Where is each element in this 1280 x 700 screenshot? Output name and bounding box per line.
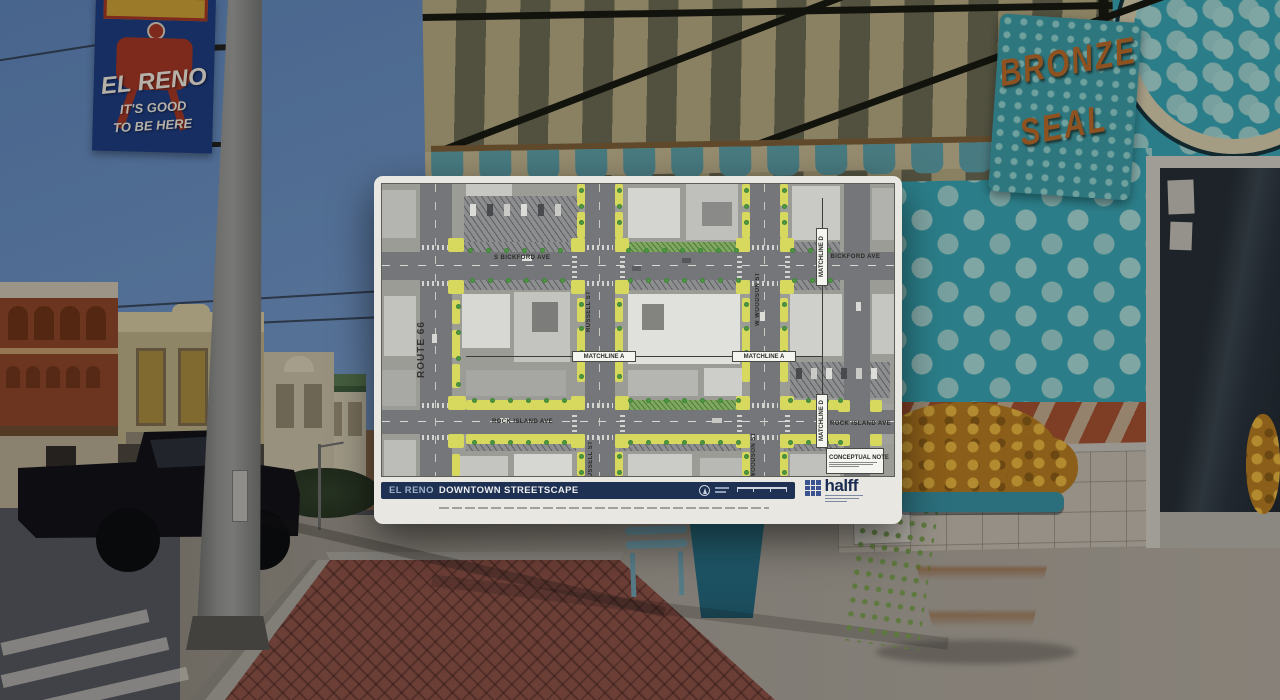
map-streetscape-zone (870, 434, 882, 446)
plan-title-main: DOWNTOWN STREETSCAPE (439, 485, 579, 496)
map-crosswalk (422, 245, 450, 250)
map-tree (456, 330, 461, 335)
map-streetscape-zone (780, 212, 788, 238)
halff-logo-text: halff (825, 478, 863, 493)
map-tree (808, 248, 813, 253)
woodson-st-label: WOODSON ST (751, 436, 757, 477)
map-building (642, 304, 664, 330)
map-tree (718, 398, 723, 403)
map-building (872, 294, 895, 354)
conceptual-note-box: CONCEPTUAL NOTE (826, 448, 884, 474)
matchline-a-box-west: MATCHLINE A (572, 351, 636, 362)
map-tree (456, 304, 461, 309)
map-tree (560, 278, 565, 283)
map-tree (540, 248, 545, 253)
map-tree (628, 398, 633, 403)
s-bickford-ave-label-east: S BICKFORD AVE (824, 254, 880, 260)
map-tree (646, 440, 651, 445)
scale-bar-icon (737, 487, 787, 494)
map-tree (734, 248, 739, 253)
map-tree (542, 278, 547, 283)
map-tree (472, 440, 477, 445)
map-tree (522, 248, 527, 253)
map-car (632, 266, 641, 271)
map-centerline (435, 184, 436, 477)
map-tree (562, 398, 567, 403)
map-tree (628, 278, 633, 283)
map-parked-car (871, 368, 877, 379)
map-crosswalk (587, 245, 613, 250)
map-tree (788, 398, 793, 403)
map-tree (792, 278, 797, 283)
map-tree (790, 248, 795, 253)
matchline-a-box-east: MATCHLINE A (732, 351, 796, 362)
map-tree (579, 302, 584, 307)
map-tree (700, 278, 705, 283)
map-streetscape-zone (615, 212, 623, 238)
map-tree (744, 220, 749, 225)
route-66-label: ROUTE 66 (416, 312, 427, 378)
map-parked-car (826, 368, 832, 379)
map-parked-car (521, 204, 527, 216)
map-tree (617, 188, 622, 193)
map-building (628, 370, 698, 396)
map-streetscape-zone (577, 212, 585, 238)
map-crosswalk (572, 254, 577, 278)
map-tree (544, 398, 549, 403)
note-microtext-line (829, 464, 873, 465)
map-building (702, 202, 732, 226)
map-centerline (764, 184, 765, 477)
aerial-plan-map: ROUTE 66 S BICKFORD AVE S BICKFORD AVE R… (381, 183, 895, 477)
map-streetscape-zone (466, 434, 576, 444)
map-streetscape-zone (742, 212, 750, 238)
map-crosswalk (620, 412, 625, 432)
map-tree (490, 398, 495, 403)
map-car (712, 418, 722, 423)
map-parking-hatch (617, 280, 745, 290)
russell-st-label-south: RUSSELL ST (588, 442, 594, 477)
map-tree (744, 326, 749, 331)
map-streetscape-zone (571, 280, 585, 294)
map-streetscape-zone (448, 238, 464, 252)
map-crosswalk (572, 412, 577, 432)
map-parked-car (504, 204, 510, 216)
map-parking-hatch (619, 444, 741, 451)
map-tree (782, 204, 787, 209)
map-car (856, 302, 861, 311)
note-microtext-line (829, 466, 859, 467)
streetscape-plan-board: ROUTE 66 S BICKFORD AVE S BICKFORD AVE R… (374, 176, 902, 524)
map-tree (744, 302, 749, 307)
map-building (466, 184, 512, 196)
map-tree (718, 440, 723, 445)
map-tree (617, 454, 622, 459)
map-building (382, 370, 416, 406)
map-tree (504, 248, 509, 253)
map-tree (806, 440, 811, 445)
map-tree (782, 220, 787, 225)
map-crosswalk (737, 412, 742, 432)
map-tree (617, 326, 622, 331)
map-parked-car (470, 204, 476, 216)
map-tree (524, 278, 529, 283)
firm-address-line (825, 498, 859, 500)
map-streetscape-zone (466, 400, 576, 410)
map-crosswalk (422, 281, 450, 286)
map-building (704, 368, 742, 396)
map-tree (468, 248, 473, 253)
map-building (382, 190, 416, 238)
map-crosswalk (587, 403, 613, 408)
map-tree (664, 440, 669, 445)
map-building (462, 294, 510, 348)
map-tree (628, 440, 633, 445)
map-tree (680, 248, 685, 253)
firm-address-line (825, 501, 847, 503)
map-tree (782, 470, 787, 475)
map-building (466, 370, 566, 396)
map-tree (470, 278, 475, 283)
map-building (628, 188, 680, 238)
map-streetscape-zone (448, 280, 464, 294)
map-tree (716, 248, 721, 253)
s-bickford-ave-label-west: S BICKFORD AVE (494, 255, 550, 261)
map-tree (579, 188, 584, 193)
rock-island-ave-label-west: ROCK ISLAND AVE (492, 419, 553, 425)
map-tree (626, 248, 631, 253)
map-tree (744, 470, 749, 475)
map-parked-car (538, 204, 544, 216)
rock-island-ave-label-east: ROCK ISLAND AVE (830, 421, 891, 427)
map-tree (744, 188, 749, 193)
map-tree (644, 248, 649, 253)
map-streetscape-zone (615, 396, 629, 410)
map-building (384, 296, 416, 356)
map-tree (472, 398, 477, 403)
map-tree (526, 440, 531, 445)
map-parking-hatch (466, 444, 576, 451)
map-tree (838, 398, 843, 403)
disclaimer-microtext (439, 507, 769, 509)
map-streetscape-zone (448, 434, 464, 448)
map-tree (782, 188, 787, 193)
map-tree (617, 302, 622, 307)
map-tree (806, 398, 811, 403)
map-building (532, 302, 558, 332)
map-tree (558, 248, 563, 253)
map-tree (579, 204, 584, 209)
map-tree (646, 398, 651, 403)
map-parked-car (856, 368, 862, 379)
map-tree (744, 454, 749, 459)
map-tree (664, 398, 669, 403)
map-tree (782, 454, 787, 459)
map-streetscape-zone (780, 360, 788, 382)
halff-logo-grid-icon (805, 480, 821, 502)
plan-title-bar: EL RENO DOWNTOWN STREETSCAPE (381, 482, 795, 499)
map-streetscape-zone (452, 454, 460, 476)
map-tree (838, 440, 843, 445)
map-crosswalk (422, 403, 450, 408)
map-tree (682, 398, 687, 403)
map-streetscape-zone (870, 400, 882, 412)
map-car (682, 258, 691, 263)
map-parked-car (811, 368, 817, 379)
map-building (872, 188, 895, 240)
map-tree (508, 398, 513, 403)
map-car (432, 334, 437, 343)
map-crosswalk (752, 403, 778, 408)
map-tree (788, 440, 793, 445)
map-tree (506, 278, 511, 283)
map-tree (698, 248, 703, 253)
map-streetscape-zone (742, 360, 750, 382)
map-streetscape-zone (615, 280, 629, 294)
map-parked-car (555, 204, 561, 216)
map-tree (617, 204, 622, 209)
map-centerline (599, 184, 600, 477)
map-building (628, 454, 692, 477)
map-tree (579, 220, 584, 225)
map-crosswalk (620, 254, 625, 278)
map-tree (486, 248, 491, 253)
map-crosswalk (785, 412, 790, 432)
map-tree (562, 440, 567, 445)
map-crosswalk (752, 245, 778, 250)
map-crosswalk (785, 254, 790, 278)
map-tree (579, 374, 584, 379)
map-tree (662, 248, 667, 253)
map-tree (526, 398, 531, 403)
map-streetscape-zone (448, 396, 466, 410)
w-woodson-st-label: W WOODSON ST (755, 270, 761, 326)
russell-st-label-north: RUSSELL ST (586, 286, 592, 332)
map-tree (544, 440, 549, 445)
map-tree (700, 440, 705, 445)
map-tree (646, 278, 651, 283)
map-tree (617, 374, 622, 379)
matchline-d-box-north: MATCHLINE D (816, 228, 828, 286)
map-parking-hatch (464, 196, 580, 242)
titlebar-microtext (715, 487, 729, 489)
map-tree (664, 278, 669, 283)
map-parked-car (487, 204, 493, 216)
map-tree (456, 382, 461, 387)
map-tree (682, 278, 687, 283)
map-tree (456, 356, 461, 361)
map-tree (736, 440, 741, 445)
map-parked-car (841, 368, 847, 379)
map-tree (736, 278, 741, 283)
map-streetscape-zone (571, 238, 585, 252)
map-tree (488, 278, 493, 283)
map-tree (718, 278, 723, 283)
map-building (790, 294, 842, 356)
map-tree (736, 398, 741, 403)
plan-title-block: EL RENO DOWNTOWN STREETSCAPE halff (381, 477, 895, 517)
map-crosswalk (737, 254, 742, 278)
note-microtext-line (829, 462, 877, 463)
north-arrow-icon (699, 485, 710, 496)
map-tree (782, 302, 787, 307)
map-building (384, 440, 416, 476)
map-tree (828, 278, 833, 283)
map-tree (617, 220, 622, 225)
plan-title-city: EL RENO (389, 485, 434, 496)
map-tree (810, 278, 815, 283)
map-crosswalk (422, 435, 450, 440)
map-tree (700, 398, 705, 403)
map-tree (744, 204, 749, 209)
map-tree (682, 440, 687, 445)
map-tree (508, 440, 513, 445)
map-parked-car (796, 368, 802, 379)
photo-stage: BRONZE SEAL EL RENO IT'S GOOD (0, 0, 1280, 700)
map-crosswalk (587, 435, 613, 440)
map-tree (579, 454, 584, 459)
map-tree (490, 440, 495, 445)
map-building (514, 454, 572, 477)
map-tree (579, 326, 584, 331)
matchline-d-box-south: MATCHLINE D (816, 394, 828, 448)
conceptual-note-title: CONCEPTUAL NOTE (829, 455, 889, 461)
map-tree (617, 470, 622, 475)
titlebar-microtext (715, 491, 726, 493)
halff-logo: halff (805, 478, 863, 502)
map-tree (579, 470, 584, 475)
map-building (700, 458, 744, 477)
map-tree (782, 326, 787, 331)
